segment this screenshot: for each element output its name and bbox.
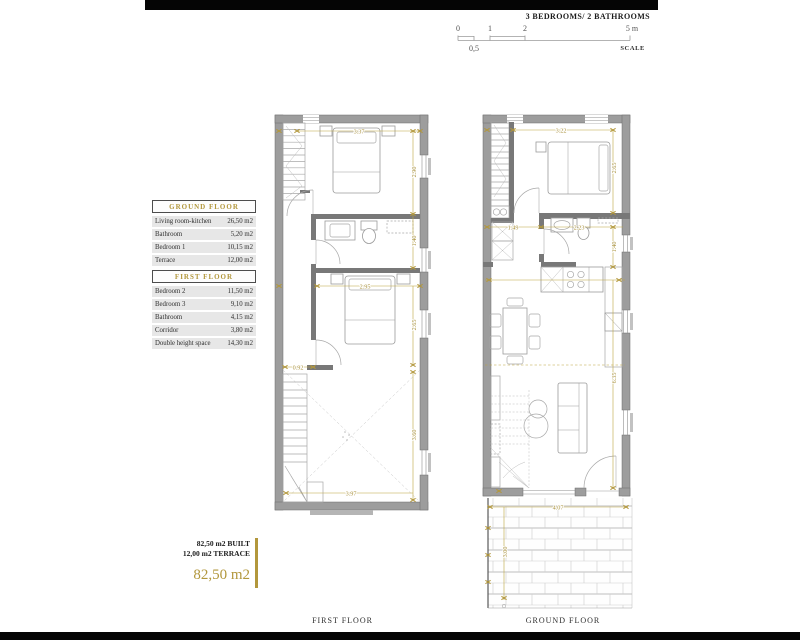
terrace-area: 12,00 m2 TERRACE <box>183 549 250 559</box>
dining-set <box>490 298 540 364</box>
table-row: Bathroom 5,20 m2 <box>152 229 256 240</box>
room-area: 11,50 m2 <box>228 288 253 295</box>
summary-lines: 82,50 m2 BUILT 12,00 m2 TERRACE <box>183 539 250 559</box>
table-row: Bathroom 4,15 m2 <box>152 312 256 323</box>
room-area: 4,15 m2 <box>231 314 253 321</box>
room-area: 3,80 m2 <box>231 327 253 334</box>
sheet-title: 3 BEDROOMS/ 2 BATHROOMS <box>430 12 650 21</box>
scale-tick-5: 5 m <box>626 24 639 33</box>
room-name: Bathroom <box>155 314 182 321</box>
area-summary: 82,50 m2 BUILT 12,00 m2 TERRACE 82,50 m2 <box>148 537 258 592</box>
dim-label: 2.65 <box>411 320 418 331</box>
table-row: Bedroom 3 9,10 m2 <box>152 299 256 310</box>
toilet <box>363 229 376 244</box>
chair <box>507 298 523 306</box>
room-area: 10,15 m2 <box>227 244 253 251</box>
nightstand <box>331 274 343 284</box>
scale-tick-half: 0,5 <box>469 44 479 53</box>
ground-floor-plan: 3.22 2.65 1.49 2.23 1.40 6.35 4.07 <box>473 110 643 622</box>
room-area: 5,20 m2 <box>231 231 253 238</box>
staircase-upper <box>283 123 310 200</box>
dim-label: 0.92 <box>293 364 304 371</box>
table-title: FIRST FLOOR <box>152 270 256 283</box>
door-arc <box>544 229 569 254</box>
chair <box>490 336 501 349</box>
room-name: Bedroom 3 <box>155 301 185 308</box>
dim-label: 6.35 <box>611 373 618 384</box>
scale-tick-1: 1 <box>488 24 492 33</box>
chair <box>490 314 501 327</box>
dining-table <box>503 308 527 354</box>
cabinet <box>387 221 413 233</box>
room-name: Bathroom <box>155 231 182 238</box>
door-arc <box>316 340 341 365</box>
room-name: Double height space <box>155 340 211 347</box>
room-area: 26,50 m2 <box>227 218 253 225</box>
bottom-black-bar <box>0 632 800 640</box>
scale-bar-line <box>458 36 630 41</box>
bathroom-first <box>316 221 413 264</box>
dim-label: 1.49 <box>508 225 519 232</box>
door-arc <box>316 240 340 264</box>
staircase-upper <box>491 122 514 223</box>
dim-label: 1.40 <box>411 236 418 247</box>
area-table-first-floor: FIRST FLOOR Bedroom 2 11,50 m2 Bedroom 3… <box>152 270 256 349</box>
chair <box>529 314 540 327</box>
dim-label: 2.65 <box>611 163 618 174</box>
bed <box>548 142 610 194</box>
scale-tick-2: 2 <box>523 24 527 33</box>
dim-label: 3.60 <box>411 430 418 441</box>
floorplan-sheet: 3 BEDROOMS/ 2 BATHROOMS 0 1 2 5 m 0,5 SC… <box>0 0 800 640</box>
door-arc <box>287 190 313 216</box>
chair <box>507 356 523 364</box>
bathroom-ground <box>544 218 618 254</box>
bedroom-1 <box>514 142 610 213</box>
dim-label: 1.40 <box>611 242 618 253</box>
sofa <box>558 383 587 453</box>
ground-floor-label: GROUND FLOOR <box>513 616 613 625</box>
door-arc <box>514 188 539 213</box>
room-name: Bedroom 1 <box>155 244 185 251</box>
dim-label: 3.37 <box>354 129 365 136</box>
nightstand <box>397 274 410 284</box>
room-name: Corridor <box>155 327 178 334</box>
dim-label: 4.07 <box>553 505 564 512</box>
dim-label: 2.95 <box>360 284 371 291</box>
table-row: Bedroom 2 11,50 m2 <box>152 286 256 297</box>
room-name: Bedroom 2 <box>155 288 185 295</box>
room-area: 12,00 m2 <box>227 257 253 264</box>
room-area: 9,10 m2 <box>231 301 253 308</box>
gold-accent-bar <box>255 538 258 588</box>
kitchen <box>541 267 622 367</box>
table-row: Terrace 12,00 m2 <box>152 255 256 266</box>
entry-door-arc <box>584 456 616 488</box>
bedroom-2 <box>287 126 395 216</box>
total-area: 82,50 m2 <box>193 567 250 584</box>
top-black-bar <box>145 0 658 10</box>
chair <box>529 336 540 349</box>
table-row: Living room-kitchen 26,50 m2 <box>152 216 256 227</box>
first-floor-plan: 3.37 2.90 1.40 2.95 2.65 0.92 3.60 3.97 <box>273 110 438 515</box>
scale-tick-0: 0 <box>456 24 460 33</box>
dim-label: 3.97 <box>346 491 357 498</box>
table-title: GROUND FLOOR <box>152 200 256 213</box>
first-floor-label: FIRST FLOOR <box>295 616 390 625</box>
dim-label: 2.23 <box>574 225 585 232</box>
scale-label: SCALE <box>620 45 645 52</box>
bed <box>333 128 380 193</box>
dim-label: 3.22 <box>556 128 567 135</box>
staircase-lower <box>491 390 529 488</box>
area-table-ground-floor: GROUND FLOOR Living room-kitchen 26,50 m… <box>152 200 256 266</box>
room-name: Living room-kitchen <box>155 218 211 225</box>
table-row: Corridor 3,80 m2 <box>152 325 256 336</box>
room-area: 14,30 m2 <box>227 340 253 347</box>
coffee-table <box>529 400 547 418</box>
table-row: Double height space 14,30 m2 <box>152 338 256 349</box>
scale-bar: 0 1 2 5 m 0,5 SCALE <box>453 23 649 55</box>
dim-label: 3.00 <box>502 547 509 558</box>
area-tables: GROUND FLOOR Living room-kitchen 26,50 m… <box>152 200 256 353</box>
table-row: Bedroom 1 10,15 m2 <box>152 242 256 253</box>
tv-unit <box>491 376 500 420</box>
room-name: Terrace <box>155 257 175 264</box>
dim-label: 2.90 <box>411 167 418 178</box>
lower-terrace-edge <box>310 510 373 515</box>
nightstand <box>536 142 546 152</box>
living-room <box>491 376 587 454</box>
built-area: 82,50 m2 BUILT <box>183 539 250 549</box>
